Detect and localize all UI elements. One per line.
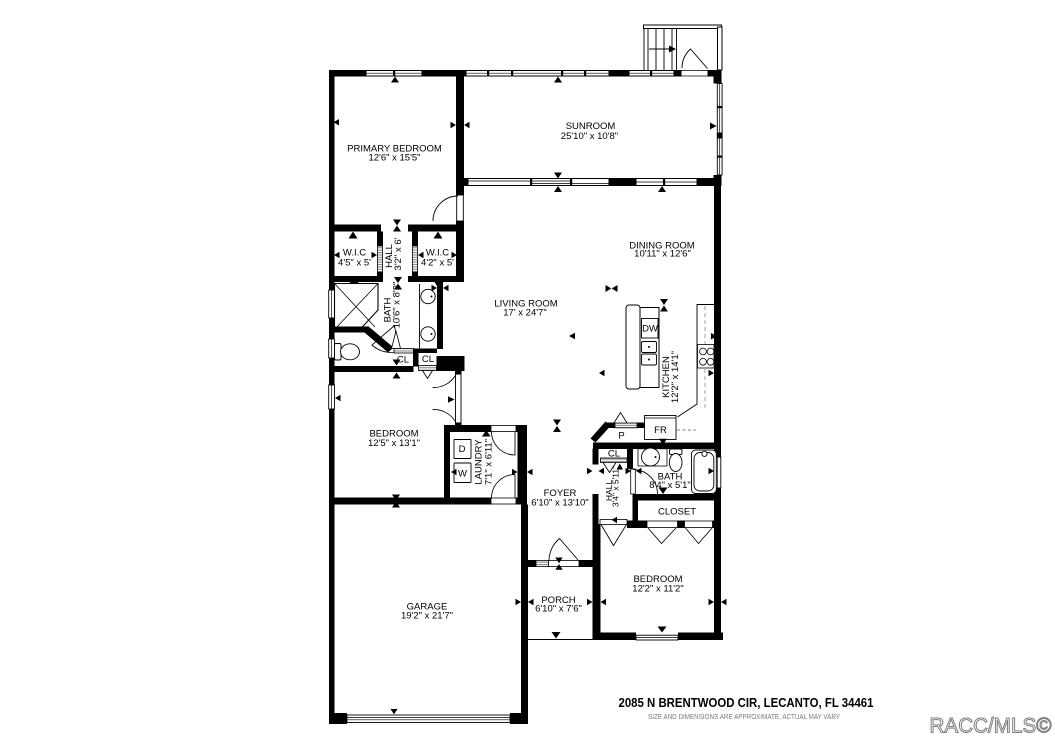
- svg-text:19'2" x 21'7": 19'2" x 21'7": [401, 611, 453, 622]
- svg-text:SIZE AND DIMENSIONS ARE APPROX: SIZE AND DIMENSIONS ARE APPROXIMATE, ACT…: [648, 712, 840, 721]
- svg-text:12'5" x 13'1": 12'5" x 13'1": [368, 438, 420, 449]
- svg-text:DW: DW: [642, 324, 658, 335]
- svg-text:17' x 24'7": 17' x 24'7": [503, 308, 546, 319]
- svg-text:CLOSET: CLOSET: [658, 507, 696, 518]
- svg-text:P: P: [618, 431, 624, 442]
- svg-text:25'10" x 10'8": 25'10" x 10'8": [561, 131, 618, 142]
- svg-text:6'10" x 13'10": 6'10" x 13'10": [531, 498, 588, 509]
- svg-text:CL: CL: [422, 354, 434, 365]
- svg-text:10'11" x 12'6": 10'11" x 12'6": [634, 249, 691, 260]
- svg-text:3'4" x 5'11": 3'4" x 5'11": [611, 466, 621, 507]
- svg-text:FR: FR: [654, 425, 667, 436]
- svg-text:6'10" x 7'6": 6'10" x 7'6": [535, 604, 582, 615]
- svg-text:3'2" x 6': 3'2" x 6': [393, 237, 404, 270]
- svg-text:2085 N BRENTWOOD CIR, LECANTO,: 2085 N BRENTWOOD CIR, LECANTO, FL 34461: [619, 696, 874, 710]
- svg-text:7'1" x 6'11": 7'1" x 6'11": [484, 439, 495, 485]
- svg-text:4'5" x 5': 4'5" x 5': [338, 258, 371, 269]
- svg-text:12'2" x 14'1": 12'2" x 14'1": [670, 351, 681, 403]
- svg-text:RACC/MLS©: RACC/MLS©: [930, 714, 1052, 738]
- svg-text:8'4" x 5'1": 8'4" x 5'1": [649, 480, 691, 491]
- svg-text:W: W: [458, 469, 467, 480]
- svg-text:12'2" x 11'2": 12'2" x 11'2": [632, 583, 683, 594]
- svg-text:D: D: [459, 444, 466, 455]
- svg-text:4'2" x 5': 4'2" x 5': [421, 258, 454, 269]
- svg-text:10'6" x 8'3": 10'6" x 8'3": [392, 282, 403, 329]
- svg-text:12'6" x 15'5": 12'6" x 15'5": [368, 153, 420, 164]
